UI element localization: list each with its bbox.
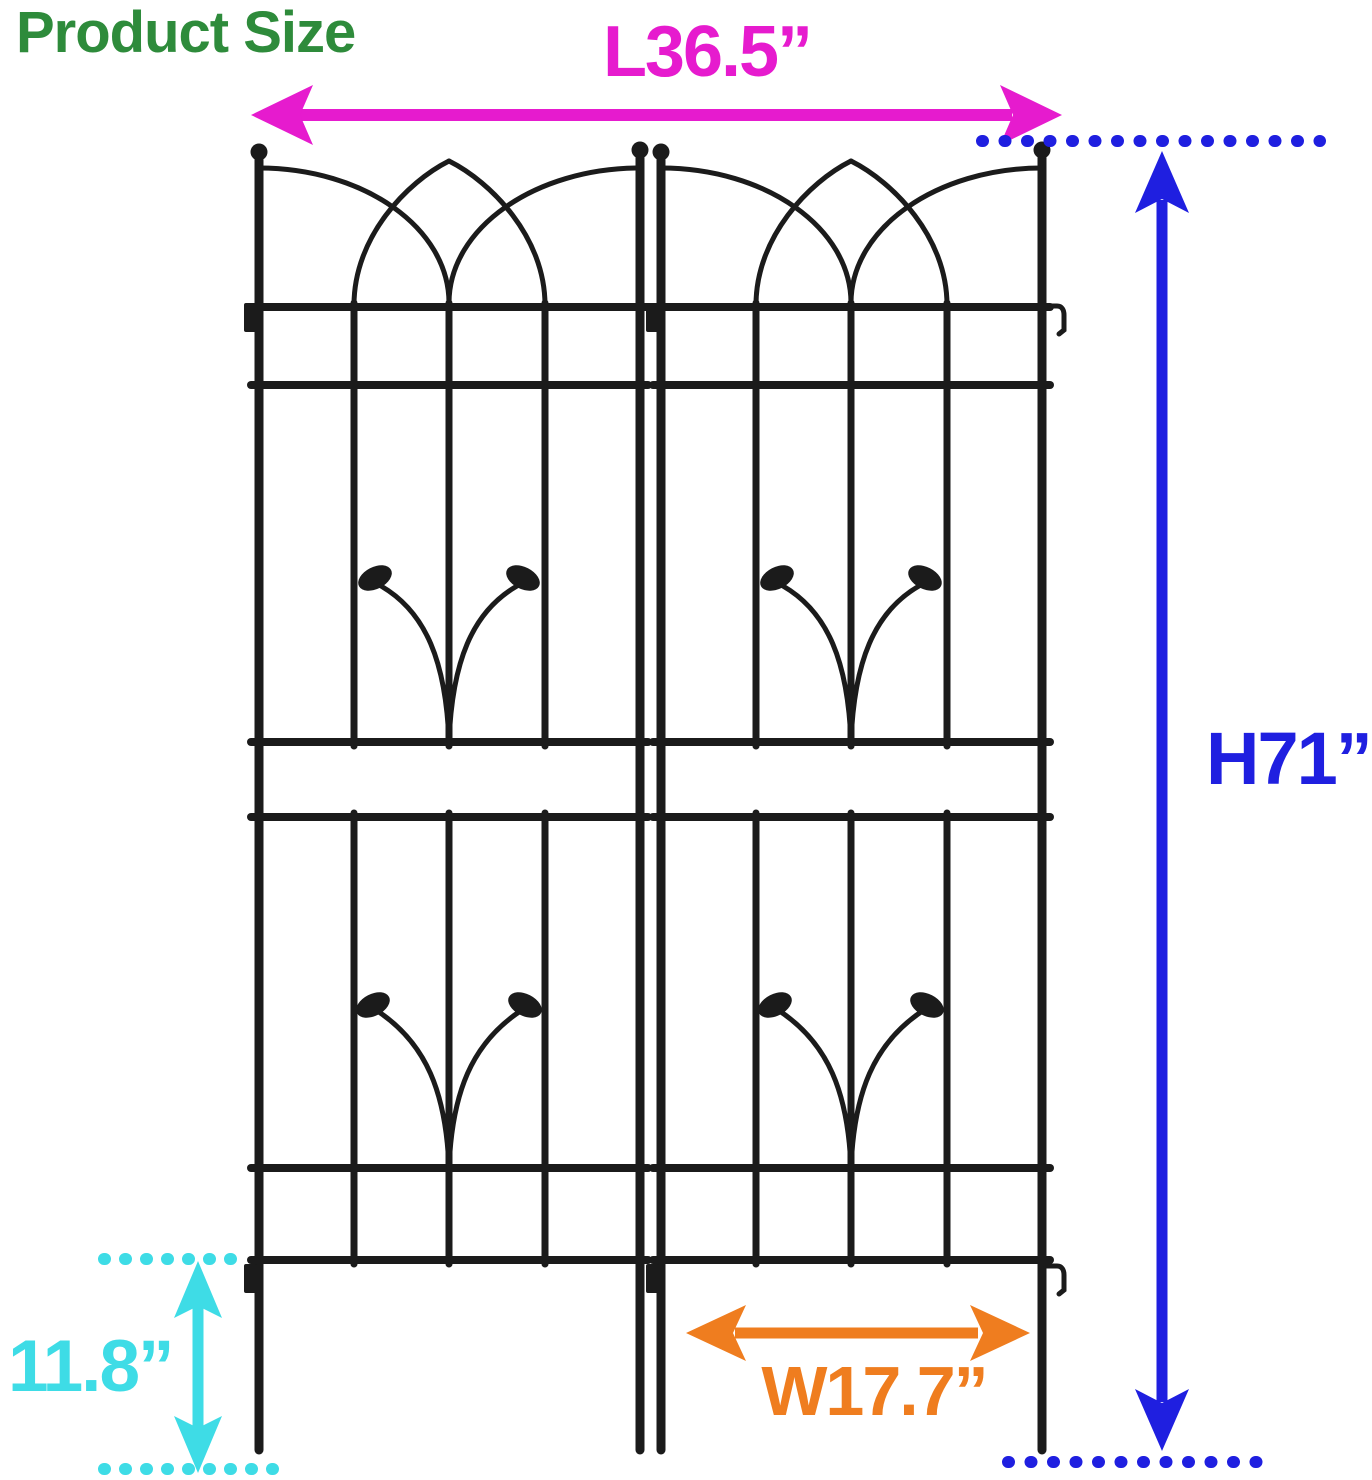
- panel-arches: [259, 161, 640, 305]
- dimension-label-stake: 11.8”: [8, 1330, 173, 1403]
- dimension-label-height: H71”: [1206, 722, 1371, 796]
- page-title: Product Size: [16, 4, 355, 62]
- trellis-panel-left: [244, 142, 649, 1451]
- dimension-label-width: W17.7”: [761, 1356, 986, 1426]
- panel-vertical-bars: [354, 303, 545, 1264]
- post-finials: [251, 142, 649, 161]
- height-arrow: [1135, 151, 1189, 1451]
- dimension-label-length: L36.5”: [603, 16, 811, 88]
- diagram-canvas: [0, 0, 1372, 1480]
- trellis-panel-right: [646, 142, 1051, 1451]
- right-post-hooks: [1046, 306, 1064, 1294]
- stake-height-arrow: [174, 1261, 222, 1473]
- product-size-diagram: Product Size L36.5” H71” 11.8” W17.7”: [0, 0, 1372, 1480]
- length-arrow: [251, 85, 1062, 145]
- trellis-drawing: [244, 142, 1064, 1451]
